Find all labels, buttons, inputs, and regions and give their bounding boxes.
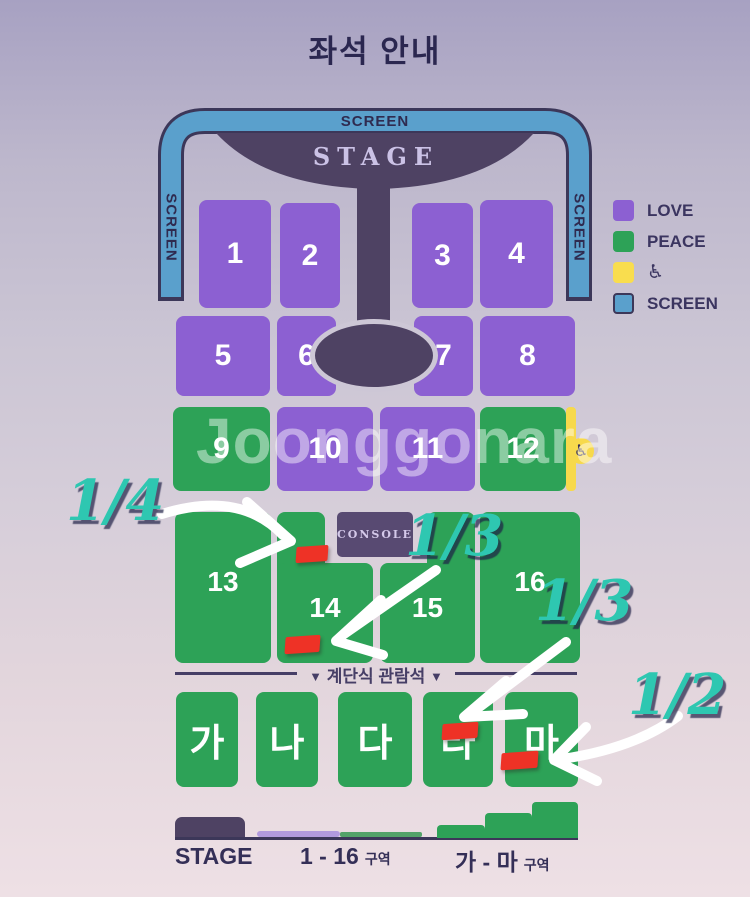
section-ga: 가 <box>176 692 238 787</box>
section-14-label: 14 <box>277 592 373 624</box>
divider-line-right <box>455 672 577 675</box>
elevation-stage-label: STAGE <box>175 843 253 870</box>
annotation-1-2-ma: 1/2 <box>628 662 726 728</box>
elevation-stage-block <box>175 817 245 837</box>
red-mark-section14-bottom <box>284 635 320 655</box>
elevation-flat-strip-green <box>340 832 422 837</box>
section-da: 다 <box>338 692 412 787</box>
legend-item-screen: SCREEN <box>613 293 718 314</box>
elevation-step-2 <box>485 813 532 838</box>
stage-label: STAGE <box>276 142 476 171</box>
section-5: 5 <box>176 316 270 396</box>
annotation-1-3-console: 1/3 <box>405 503 503 569</box>
section-13: 13 <box>175 512 271 663</box>
section-13-label: 13 <box>175 566 271 598</box>
elevation-flat-label: 1 - 16구역 <box>300 843 391 870</box>
annotation-1-3-ra: 1/3 <box>535 568 633 634</box>
screen-label-right: SCREEN <box>571 168 588 288</box>
section-8: 8 <box>480 316 575 396</box>
love-color-swatch <box>613 200 634 221</box>
wheelchair-color-swatch <box>613 262 634 283</box>
elevation-step-3 <box>532 802 578 838</box>
runway-end-stage <box>310 319 438 392</box>
screen-label-top: SCREEN <box>275 113 475 130</box>
section-ma: 마 <box>505 692 578 787</box>
screen-label-left: SCREEN <box>163 168 180 288</box>
divider-line-left <box>175 672 297 675</box>
watermark: Joonggonara <box>196 404 612 478</box>
legend-item-love: LOVE <box>613 200 718 221</box>
section-2: 2 <box>280 203 340 308</box>
console-box: CONSOLE <box>337 512 413 557</box>
annotation-1-4: 1/4 <box>66 468 164 534</box>
tiered-seating-label: ▼ 계단식 관람석 ▼ <box>295 662 457 687</box>
page-title: 좌석 안내 <box>0 26 750 71</box>
screen-band-left-cap <box>158 297 184 301</box>
legend-item-peace: PEACE <box>613 231 718 252</box>
wheelchair-legend-icon: ♿ <box>647 261 664 284</box>
red-mark-section-ma <box>500 751 538 771</box>
legend: LOVE PEACE ♿ SCREEN <box>613 200 718 324</box>
section-15-label: 15 <box>380 592 475 624</box>
section-1: 1 <box>199 200 271 308</box>
red-mark-section-ra <box>441 722 478 741</box>
elevation-flat-strip-purple <box>257 831 340 837</box>
screen-color-swatch <box>613 293 634 314</box>
screen-band-right-cap <box>566 297 592 301</box>
red-mark-section14-top <box>295 545 328 563</box>
peace-color-swatch <box>613 231 634 252</box>
elevation-step-label: 가 - 마구역 <box>455 843 550 877</box>
section-ra: 라 <box>423 692 493 787</box>
section-na: 나 <box>256 692 318 787</box>
section-3: 3 <box>412 203 473 308</box>
legend-item-wheelchair: ♿ <box>613 262 718 283</box>
elevation-step-1 <box>437 825 485 838</box>
stage-runway <box>357 178 390 336</box>
seating-map: 좌석 안내 SCREEN SCREEN SCREEN STAGE 1 2 3 4… <box>0 0 750 897</box>
section-4: 4 <box>480 200 553 308</box>
